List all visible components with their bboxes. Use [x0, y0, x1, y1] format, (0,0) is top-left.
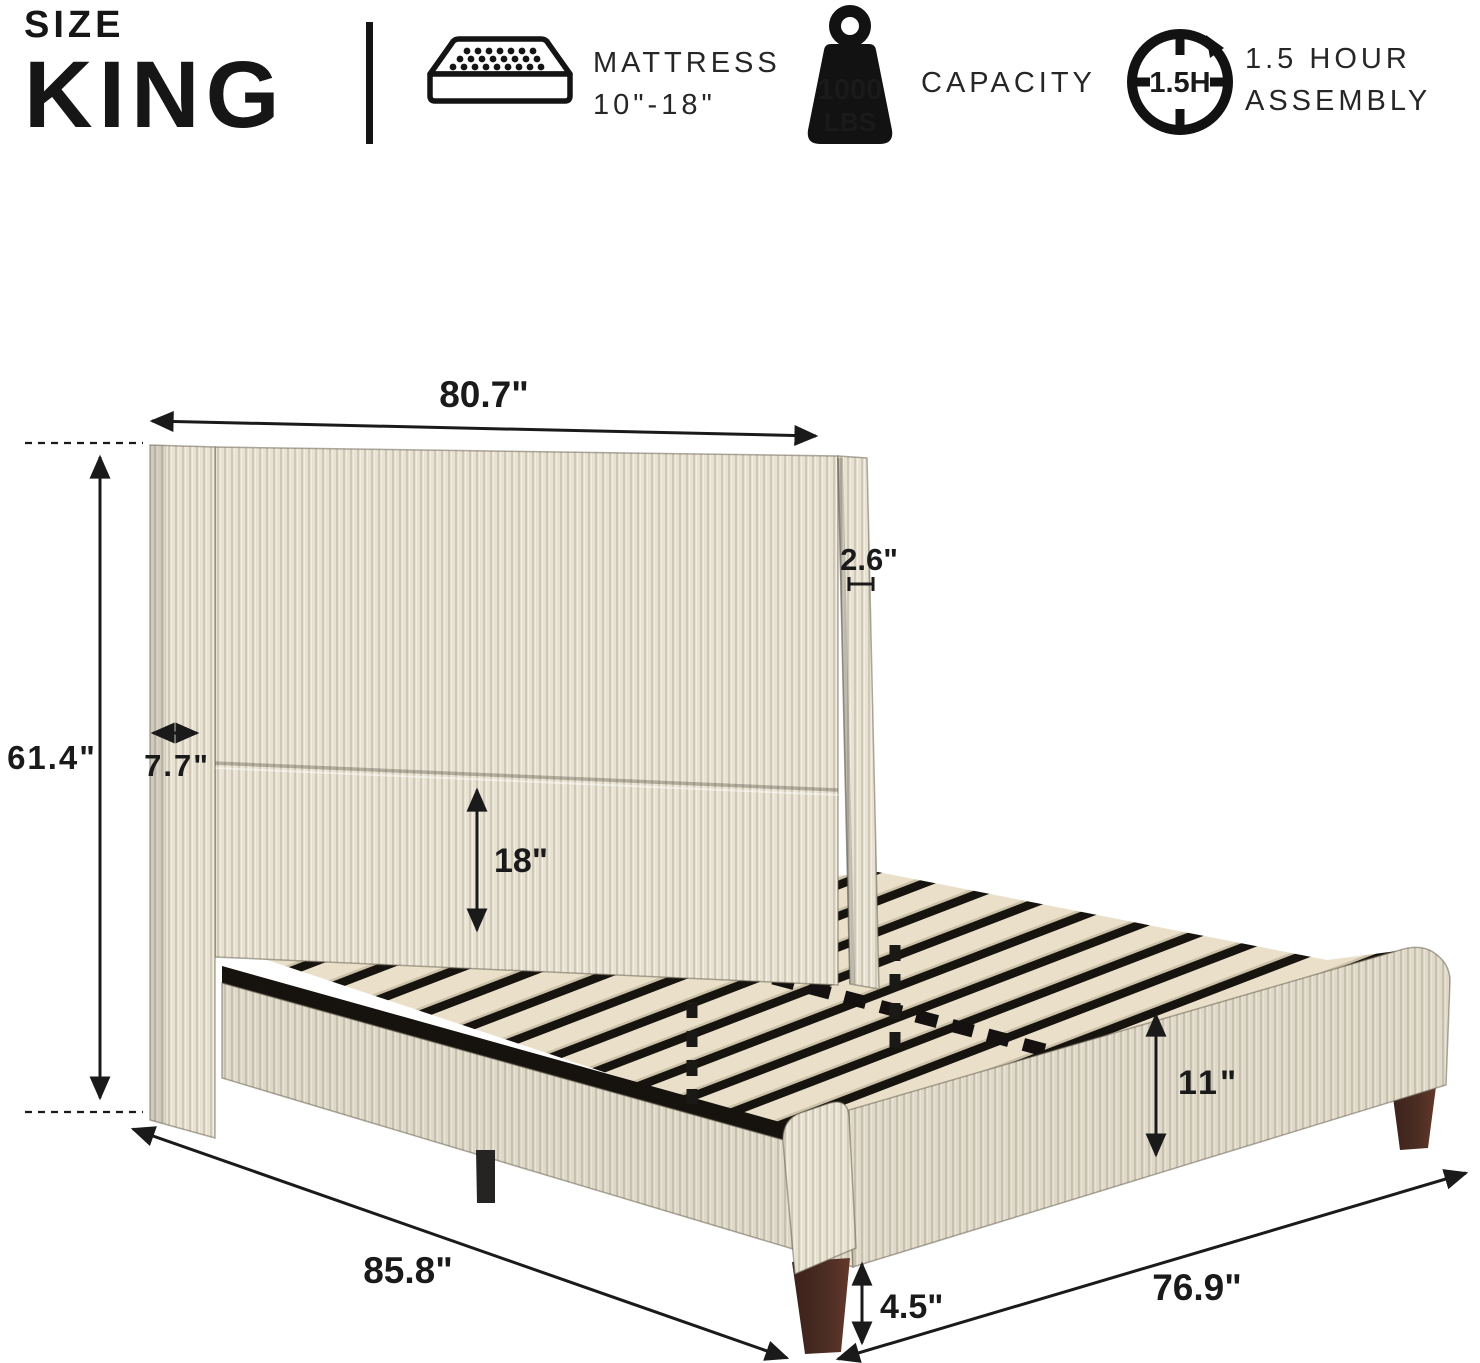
dim-arrow	[152, 421, 816, 436]
dim-label: 4.5"	[880, 1288, 943, 1326]
headboard-panel	[215, 447, 838, 985]
dim-headboard-width: 80.7"	[152, 374, 816, 436]
bed-diagram: 80.7" 2.6" 61.4" 7.7"	[0, 0, 1480, 1363]
front-corner-leg	[792, 1258, 850, 1354]
dim-label: 61.4"	[7, 739, 97, 776]
dim-label: 85.8"	[363, 1250, 453, 1291]
bed-illustration	[150, 445, 1450, 1354]
dim-label: 80.7"	[439, 374, 529, 415]
left-wing-edge-shade	[150, 445, 166, 1124]
center-support-leg	[476, 1150, 495, 1203]
footboard-end-cap	[783, 1102, 856, 1274]
product-dimension-sheet: SIZE KING MATTRESS 10"-18"	[0, 0, 1480, 1363]
dim-wing-thickness: 2.6"	[840, 542, 898, 591]
dim-label: 76.9"	[1152, 1267, 1242, 1308]
dim-headboard-height: 61.4"	[7, 443, 143, 1112]
dim-label: 11"	[1178, 1064, 1239, 1102]
dim-label: 2.6"	[840, 542, 898, 577]
dim-label: 18"	[494, 842, 548, 880]
dim-label: 7.7"	[144, 748, 210, 783]
